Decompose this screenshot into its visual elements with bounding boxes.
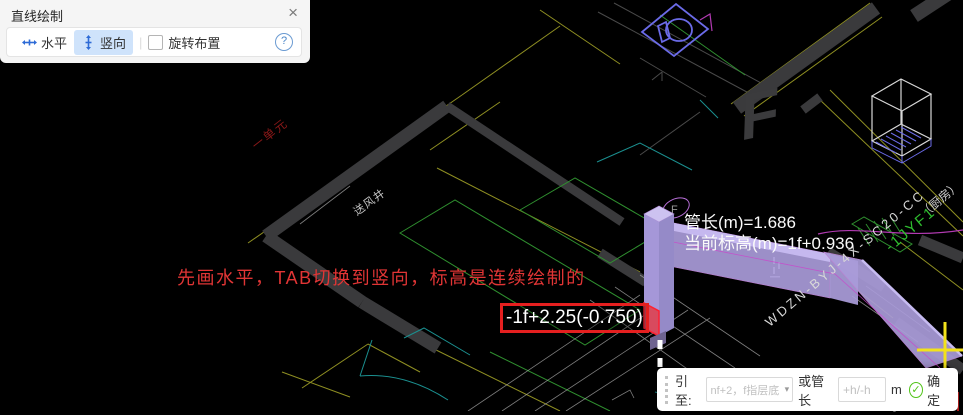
rotate-checkbox[interactable] — [148, 35, 163, 50]
elevation-input-bar: 引至: nf+2，f指层底 ▾ 或管长 m ✓ 确定 — [657, 368, 958, 411]
horizontal-mode-label: 水平 — [41, 33, 67, 52]
help-icon[interactable]: ? — [275, 33, 293, 51]
rotate-checkbox-label: 旋转布置 — [168, 33, 220, 52]
pipe-length-text: 管长(m)=1.686 — [684, 212, 854, 233]
red-tip-text: 先画水平，TAB切换到竖向，标高是连续绘制的 — [177, 264, 586, 290]
vertical-mode-button[interactable]: 竖向 — [74, 30, 133, 55]
pipe-length-input[interactable] — [838, 377, 886, 402]
lead-to-label: 引至: — [675, 371, 701, 409]
drag-handle-icon[interactable] — [665, 376, 668, 404]
check-circle-icon: ✓ — [909, 382, 923, 398]
line-draw-panel: 直线绘制 × 水平 竖向 | 旋转布置 ? — [0, 0, 310, 63]
target-elevation-select[interactable]: nf+2，f指层底 ▾ — [706, 377, 793, 402]
wireframe-box — [872, 79, 931, 163]
pipe-info-tooltip: 管长(m)=1.686 当前标高(m)=1f+0.936 — [684, 212, 854, 254]
toolbar-divider: | — [139, 35, 142, 50]
or-pipe-length-label: 或管长 — [798, 371, 833, 409]
chevron-down-icon: ▾ — [785, 384, 790, 395]
unit-label: m — [891, 382, 902, 397]
cad-big-f-label: F — [739, 72, 780, 156]
current-elevation-text: 当前标高(m)=1f+0.936 — [684, 233, 854, 254]
vertical-icon — [81, 35, 96, 50]
target-elevation-placeholder: nf+2，f指层底 — [710, 382, 784, 398]
close-icon[interactable]: × — [288, 4, 298, 22]
draw-mode-toolbar: 水平 竖向 | 旋转布置 ? — [6, 27, 302, 57]
cad-app-window: { "draw_panel": { "title": "直线绘制", "clos… — [0, 0, 963, 411]
horizontal-mode-button[interactable]: 水平 — [15, 30, 74, 55]
horizontal-icon — [22, 35, 37, 50]
elevation-tag[interactable]: -1f+2.25(-0.750) — [500, 303, 649, 333]
confirm-button[interactable]: ✓ 确定 — [909, 371, 950, 409]
panel-title: 直线绘制 — [11, 6, 63, 25]
vertical-mode-label: 竖向 — [100, 33, 126, 52]
confirm-label: 确定 — [927, 371, 950, 409]
